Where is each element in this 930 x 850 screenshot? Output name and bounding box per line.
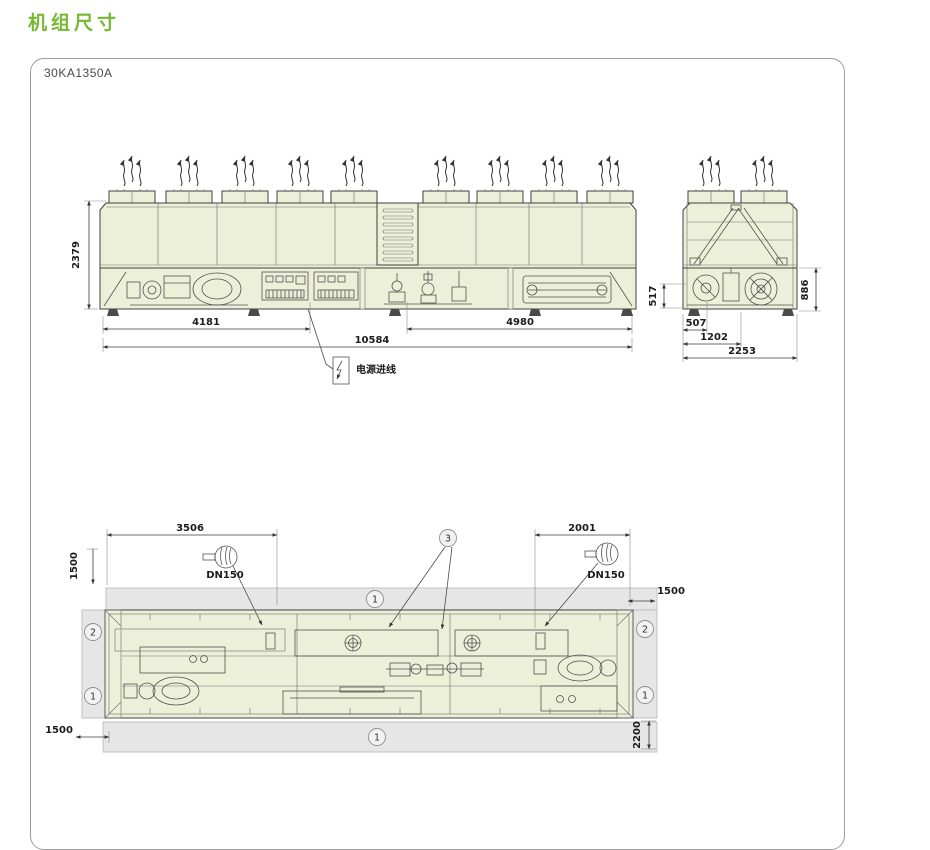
callout-1-top: 1	[367, 591, 384, 608]
callout-1-right: 1	[637, 687, 654, 704]
callout-2-right: 2	[637, 621, 654, 638]
svg-text:2: 2	[642, 625, 648, 636]
svg-text:4181: 4181	[192, 317, 220, 328]
svg-text:1: 1	[374, 733, 380, 744]
svg-text:1: 1	[372, 595, 378, 606]
svg-text:1: 1	[90, 692, 96, 703]
svg-text:2001: 2001	[568, 523, 596, 534]
callout-1-bottom: 1	[369, 729, 386, 746]
svg-text:886: 886	[800, 280, 811, 301]
technical-drawing: 2379 4181 4980 10584 电源进线	[0, 0, 930, 830]
svg-text:1500: 1500	[69, 552, 80, 580]
svg-text:1500: 1500	[45, 725, 73, 736]
air-flow-arrows-side	[702, 156, 773, 186]
svg-text:2379: 2379	[71, 241, 82, 269]
dim-front-total-length: 10584	[103, 335, 632, 352]
svg-text:1: 1	[642, 691, 648, 702]
plan-view: 3506 2001 1500 1500 1500 2200	[45, 523, 685, 752]
flange-fitting-right	[464, 635, 480, 651]
fan-row-side	[688, 189, 787, 203]
svg-text:10584: 10584	[355, 335, 390, 346]
svg-text:1500: 1500	[657, 586, 685, 597]
svg-text:3: 3	[445, 534, 451, 545]
dim-clearance-top-left: 1500	[69, 549, 98, 584]
unit-body-side	[683, 203, 797, 309]
catalog-page: { "page": { "title": "机组尺寸", "model": "3…	[0, 0, 930, 830]
power-inlet-label: 电源进线	[356, 363, 396, 376]
callout-1-left: 1	[85, 688, 102, 705]
svg-text:517: 517	[648, 286, 659, 307]
air-flow-arrows-front	[123, 156, 619, 186]
unit-body-plan	[105, 610, 633, 718]
svg-text:1202: 1202	[700, 332, 728, 343]
svg-text:2200: 2200	[632, 721, 643, 749]
dim-clearance-bottom-left: 1500	[45, 725, 109, 743]
svg-text:2253: 2253	[728, 346, 756, 357]
svg-text:3506: 3506	[176, 523, 204, 534]
side-view: 517 886 507 1202 2253	[648, 156, 821, 362]
dim-side-right-height: 886	[799, 268, 821, 311]
dn150-label-right: DN150	[587, 570, 625, 581]
power-inlet-icon	[333, 357, 349, 384]
callout-2-left: 2	[85, 624, 102, 641]
front-elevation-view: 2379 4181 4980 10584 电源进线	[71, 156, 636, 384]
power-inlet-callout: 电源进线	[308, 309, 396, 384]
center-louver	[377, 203, 418, 265]
flange-fitting-left	[345, 635, 361, 651]
dn150-valve-icon-right	[585, 543, 618, 565]
dim-side-left-height: 517	[648, 284, 686, 308]
fan-row-front	[109, 189, 633, 203]
svg-text:2: 2	[90, 628, 96, 639]
dn150-label-left: DN150	[206, 570, 244, 581]
svg-text:4980: 4980	[506, 317, 534, 328]
feet-front	[107, 309, 633, 316]
unit-body-front	[100, 203, 636, 309]
svg-text:507: 507	[686, 318, 707, 329]
dn150-valve-icon-left	[203, 546, 237, 568]
